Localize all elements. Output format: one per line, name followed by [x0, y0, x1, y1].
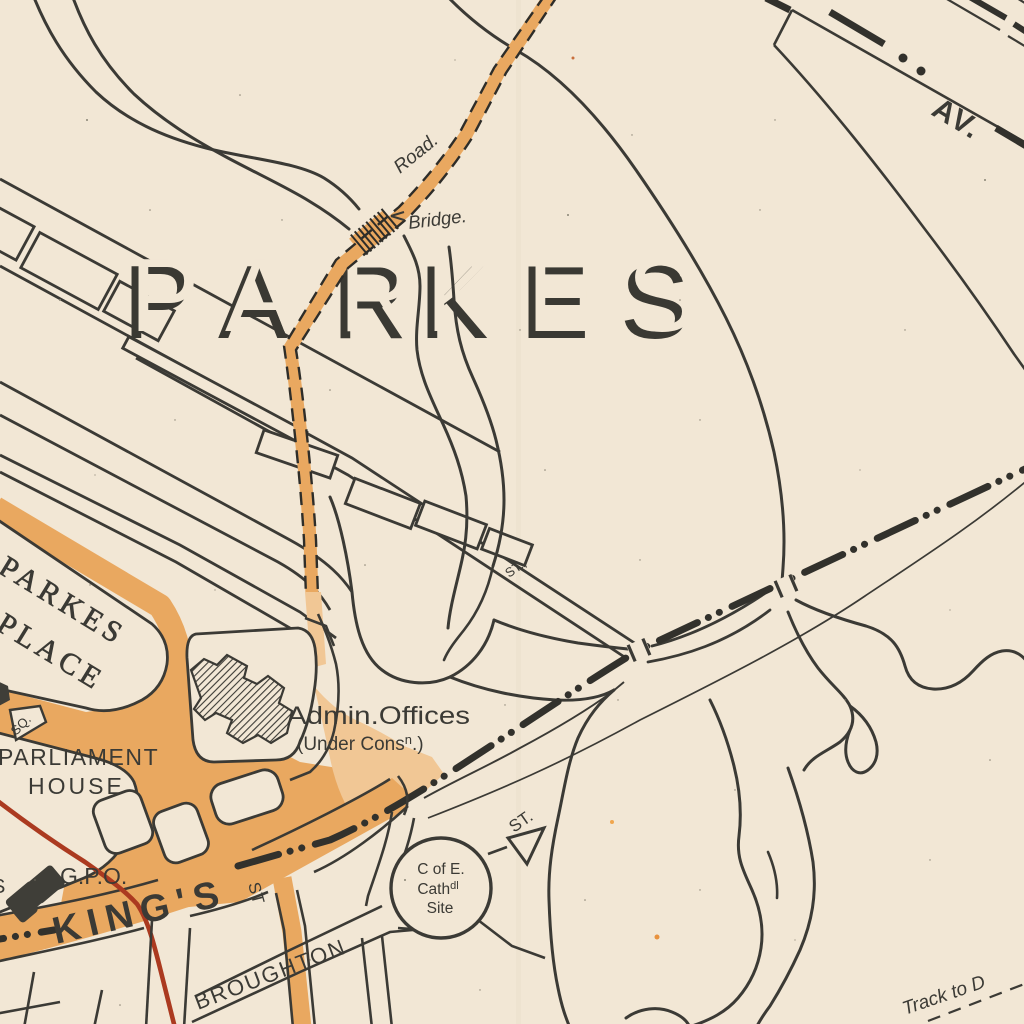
- svg-text:G.P.O.: G.P.O.: [60, 863, 127, 889]
- svg-text:S: S: [627, 238, 696, 354]
- svg-text:S: S: [0, 876, 5, 898]
- svg-text:P: P: [130, 238, 199, 354]
- svg-text:Site: Site: [427, 900, 454, 917]
- svg-text:A: A: [225, 238, 295, 354]
- svg-text:(Under Consn.): (Under Consn.): [297, 732, 424, 755]
- svg-text:HOUSE: HOUSE: [28, 773, 125, 799]
- svg-text:C of E.: C of E.: [417, 861, 464, 878]
- svg-text:E: E: [527, 238, 596, 354]
- svg-text:K: K: [426, 238, 495, 354]
- svg-text:PARLIAMENT: PARLIAMENT: [0, 744, 159, 770]
- svg-text:Admin.Offices: Admin.Offices: [287, 702, 470, 730]
